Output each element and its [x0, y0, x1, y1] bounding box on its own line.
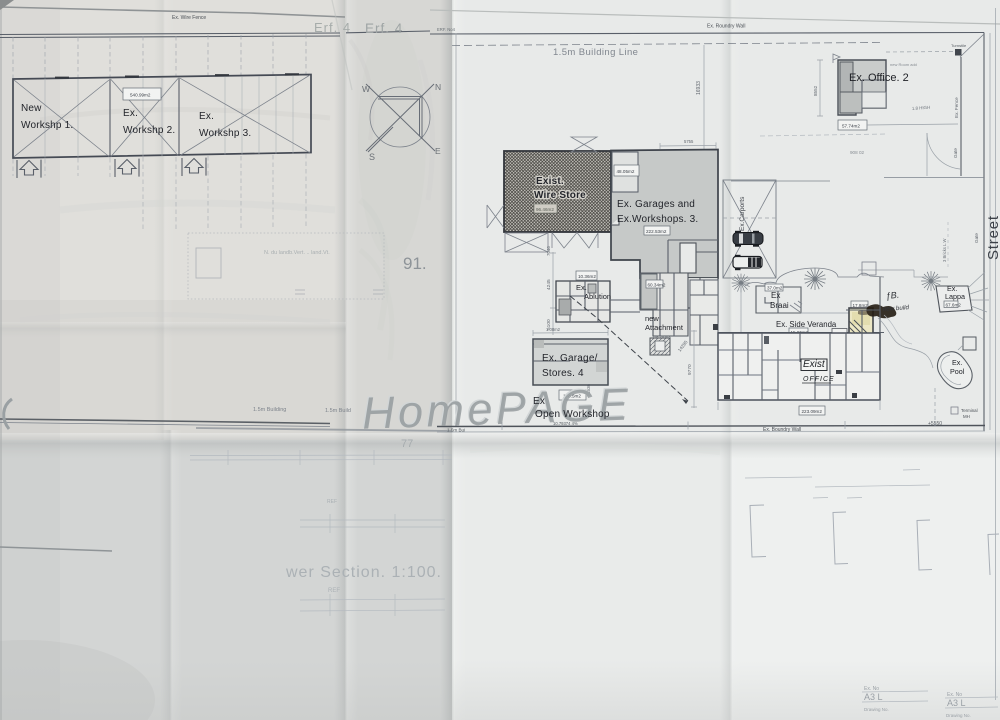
svg-text:New: New	[21, 103, 42, 114]
svg-text:REF: REF	[327, 499, 337, 505]
svg-text:Ablution: Ablution	[584, 292, 611, 301]
svg-text:223.09m2: 223.09m2	[802, 409, 823, 414]
svg-text:Lappa: Lappa	[945, 292, 965, 301]
svg-text:9770: 9770	[687, 364, 693, 375]
svg-text:ERF. No4: ERF. No4	[437, 27, 456, 32]
svg-text:Wire Store: Wire Store	[534, 190, 586, 201]
svg-text:Gate: Gate	[974, 233, 979, 243]
svg-text:OFFICE: OFFICE	[803, 376, 835, 383]
svg-text:A3 L: A3 L	[864, 692, 883, 702]
svg-text:Workshp 1.: Workshp 1.	[21, 120, 73, 131]
svg-text:Ex. Garage/: Ex. Garage/	[542, 353, 598, 364]
svg-text:Ex. Office. 2: Ex. Office. 2	[849, 72, 909, 84]
svg-text:Ex.: Ex.	[952, 358, 962, 367]
svg-text:908 02: 908 02	[850, 150, 864, 155]
svg-text:5755: 5755	[684, 139, 694, 144]
svg-text:MH: MH	[963, 414, 970, 419]
svg-text:16933: 16933	[696, 81, 702, 95]
svg-text:Turnstile: Turnstile	[951, 43, 967, 48]
svg-text:Exist: Exist	[803, 359, 826, 370]
svg-text:Drawing No.: Drawing No.	[946, 713, 971, 718]
svg-text:A3 L: A3 L	[947, 698, 966, 708]
svg-text:Braai: Braai	[770, 301, 789, 310]
svg-text:Ex.Workshops. 3.: Ex.Workshops. 3.	[617, 214, 698, 225]
svg-text:ƒB.: ƒB.	[885, 290, 899, 301]
svg-text:96.46m2: 96.46m2	[536, 207, 554, 212]
svg-text:Ex. Side Veranda: Ex. Side Veranda	[776, 320, 837, 329]
svg-text:540.99m2: 540.99m2	[130, 93, 151, 98]
svg-text:1.5m Build: 1.5m Build	[325, 408, 351, 414]
svg-text:Ex: Ex	[771, 291, 780, 300]
svg-text:Ex. Fence: Ex. Fence	[954, 97, 959, 118]
svg-text:Drawing No.: Drawing No.	[864, 707, 889, 712]
svg-text:3 Bricks L.W: 3 Bricks L.W	[942, 238, 947, 262]
svg-text:Street: Street	[985, 215, 1000, 260]
svg-text:4245: 4245	[546, 279, 552, 290]
svg-text:Open Workshop: Open Workshop	[535, 409, 610, 420]
svg-text:Stores. 4: Stores. 4	[542, 368, 584, 379]
svg-text:Ex. Roundry Wall: Ex. Roundry Wall	[707, 24, 745, 30]
svg-text:Workshp 2.: Workshp 2.	[123, 125, 175, 136]
svg-text:Ex.: Ex.	[576, 283, 587, 292]
svg-text:77: 77	[401, 438, 413, 450]
svg-text:1.5m Building Line: 1.5m Building Line	[553, 47, 638, 58]
svg-text:REF: REF	[328, 588, 340, 594]
svg-text:Gate: Gate	[953, 148, 958, 158]
svg-text:8552: 8552	[813, 85, 818, 96]
svg-text:1.5m Building: 1.5m Building	[253, 407, 286, 413]
svg-text:E: E	[435, 146, 441, 156]
svg-text:Exist.: Exist.	[536, 176, 564, 187]
svg-text:57.74m2: 57.74m2	[842, 123, 860, 128]
svg-text:N. du landb.Vert. .. land.Vt: N. du landb.Vert. .. land.Vt.	[264, 250, 330, 256]
svg-text:91.: 91.	[403, 254, 427, 273]
svg-text:222.53m2: 222.53m2	[646, 229, 667, 234]
svg-text:1.08m2: 1.08m2	[546, 327, 561, 332]
svg-text:37.0m2: 37.0m2	[767, 286, 783, 291]
svg-text:Ex: Ex	[533, 396, 545, 407]
svg-text:wer Section. 1:100.: wer Section. 1:100.	[285, 564, 442, 581]
svg-text:new: new	[645, 314, 659, 323]
svg-text:Terminal: Terminal	[961, 408, 978, 413]
svg-text:10.36m2: 10.36m2	[578, 274, 596, 279]
svg-text:Ex. Wire Fence: Ex. Wire Fence	[172, 15, 206, 21]
svg-text:Ex. Garages and: Ex. Garages and	[617, 199, 695, 210]
svg-text:Ex. Boundry Wall: Ex. Boundry Wall	[763, 427, 801, 433]
svg-text:Attachment: Attachment	[645, 323, 684, 332]
svg-text:W: W	[362, 84, 370, 94]
svg-text:N: N	[435, 82, 441, 92]
svg-text:48.05m2: 48.05m2	[617, 169, 635, 174]
svg-text:new Room add: new Room add	[890, 62, 917, 67]
svg-text:Workshp 3.: Workshp 3.	[199, 128, 251, 139]
svg-text:Erf. 4: Erf. 4	[365, 21, 403, 36]
svg-text:Ex.: Ex.	[123, 108, 138, 119]
svg-text:67.6m2: 67.6m2	[946, 303, 962, 308]
svg-text:60.34m2: 60.34m2	[648, 282, 666, 287]
svg-text:Erf. 4: Erf. 4	[314, 20, 351, 35]
svg-text:S: S	[369, 152, 375, 162]
svg-text:Ex.: Ex.	[199, 111, 214, 122]
svg-text:Pool: Pool	[950, 367, 965, 376]
svg-text:7046: 7046	[546, 246, 551, 256]
svg-text:Ex.Carports: Ex.Carports	[739, 196, 746, 231]
